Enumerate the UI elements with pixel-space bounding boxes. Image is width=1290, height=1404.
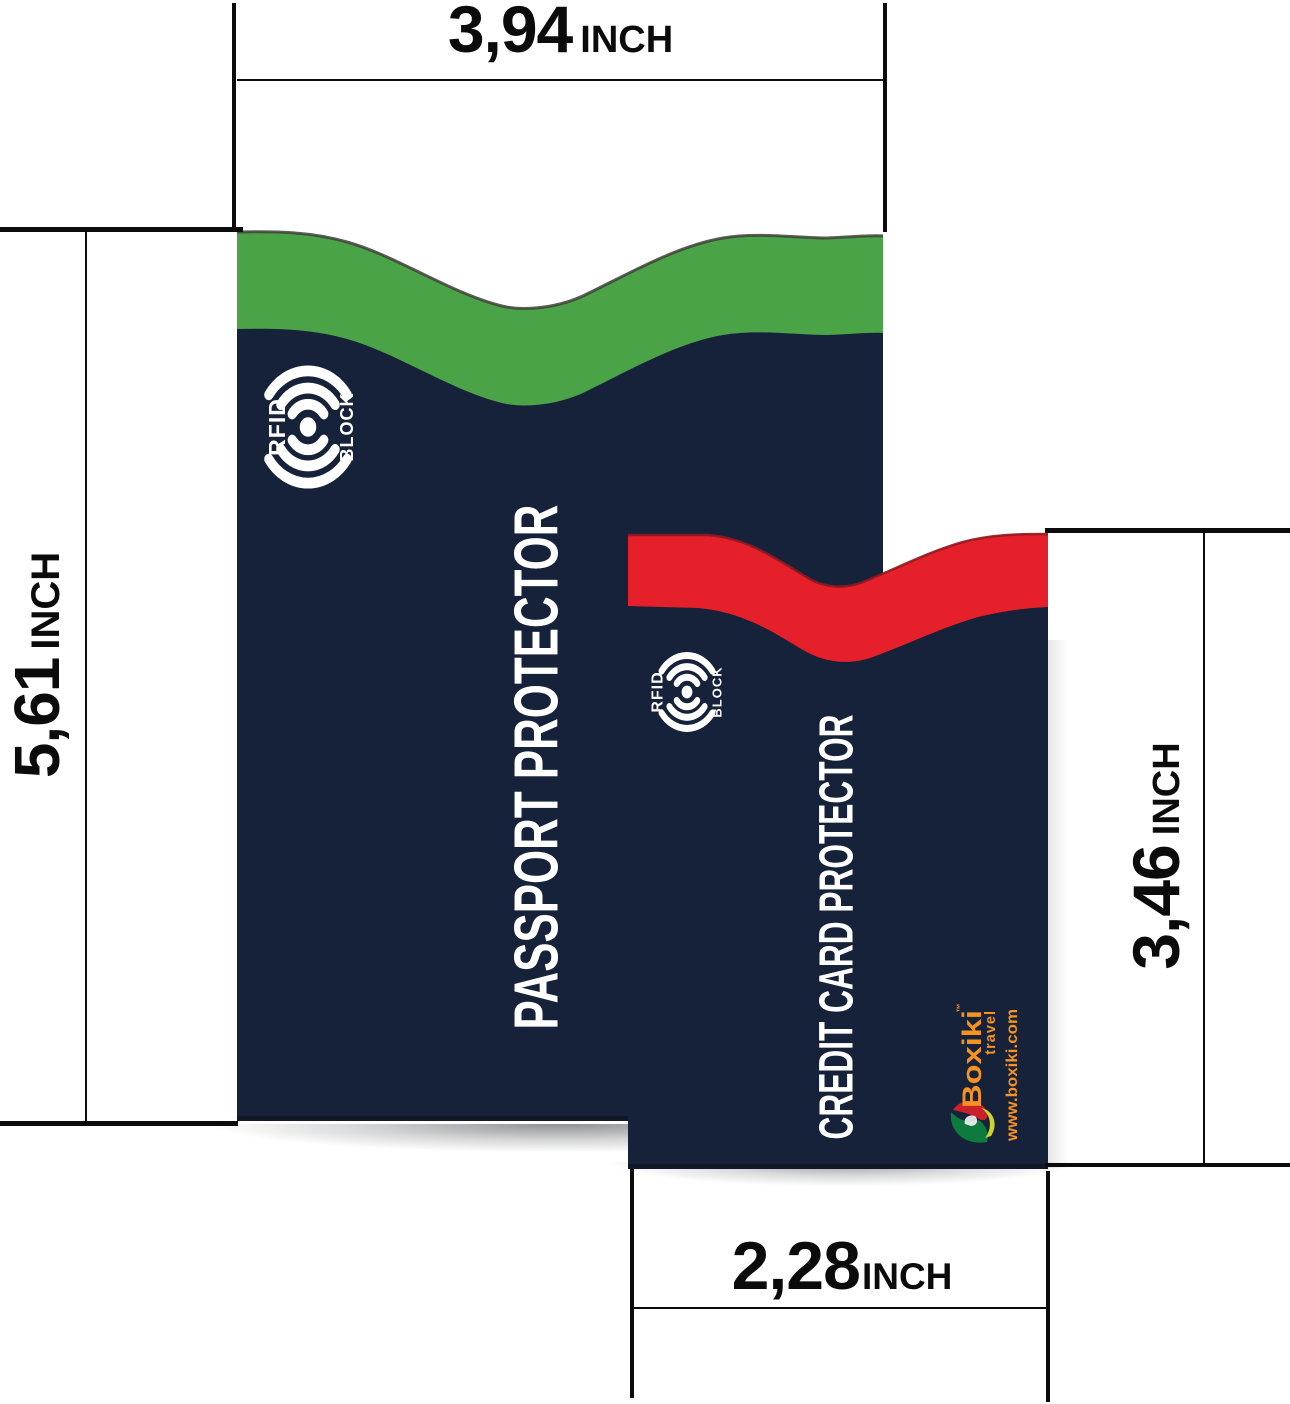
brand-trademark: ™ bbox=[955, 1004, 965, 1013]
dimension-value: 2,28 bbox=[732, 1232, 860, 1300]
dimension-label-top: 3,94 INCH bbox=[237, 0, 884, 62]
brand-tagline: travel bbox=[983, 1010, 999, 1055]
dimension-value: 3,46 bbox=[1123, 845, 1189, 969]
dimension-value: 3,94 bbox=[448, 0, 572, 62]
dimension-line-bottom bbox=[632, 1307, 1048, 1309]
dimension-extension-bottom-right bbox=[1046, 1171, 1050, 1402]
dimension-label-left: 5,61 INCH bbox=[5, 505, 75, 825]
block-text: BLOCK bbox=[710, 666, 725, 717]
dimension-extension-left-bottom bbox=[0, 1121, 238, 1126]
dimension-extension-top-left bbox=[232, 3, 236, 230]
dimension-unit: INCH bbox=[580, 21, 673, 59]
dimension-extension-bottom-left bbox=[630, 1169, 634, 1398]
dimension-extension-left-top bbox=[0, 227, 243, 232]
passport-label: PASSPORT PROTECTOR bbox=[503, 505, 572, 1030]
dimension-line-right bbox=[1203, 533, 1205, 1164]
dimension-extension-right-bottom bbox=[1045, 1163, 1290, 1167]
dimension-extension-right-top bbox=[1045, 528, 1290, 533]
credit-label: CREDIT CARD PROTECTOR bbox=[811, 715, 864, 1140]
rfid-block-badge: RFID BLOCK bbox=[264, 371, 357, 483]
brand-website: www.boxiki.com bbox=[1004, 1009, 1021, 1142]
rfid-text: RFID bbox=[264, 398, 290, 456]
rfid-text: RFID bbox=[650, 671, 667, 712]
credit-card-protector-sleeve: RFID BLOCK CREDIT CARD PROTECTOR Boxiki … bbox=[628, 520, 1048, 1173]
dimension-line-top bbox=[237, 79, 884, 81]
dimension-unit: INCH bbox=[862, 1258, 952, 1295]
dimension-unit: INCH bbox=[1148, 742, 1186, 835]
block-text: BLOCK bbox=[337, 393, 357, 462]
dimension-unit: INCH bbox=[26, 552, 66, 650]
credit-bottom-edge bbox=[628, 1164, 1048, 1169]
product-dimension-diagram: RFID BLOCK PASSPORT PROTECTOR RFID BLOCK… bbox=[0, 0, 1290, 1404]
dimension-label-right: 3,46 INCH bbox=[1123, 696, 1193, 1016]
dimension-value: 5,61 bbox=[5, 658, 69, 779]
dimension-label-bottom: 2,28 INCH bbox=[642, 1232, 1042, 1300]
dimension-line-left bbox=[85, 232, 87, 1122]
